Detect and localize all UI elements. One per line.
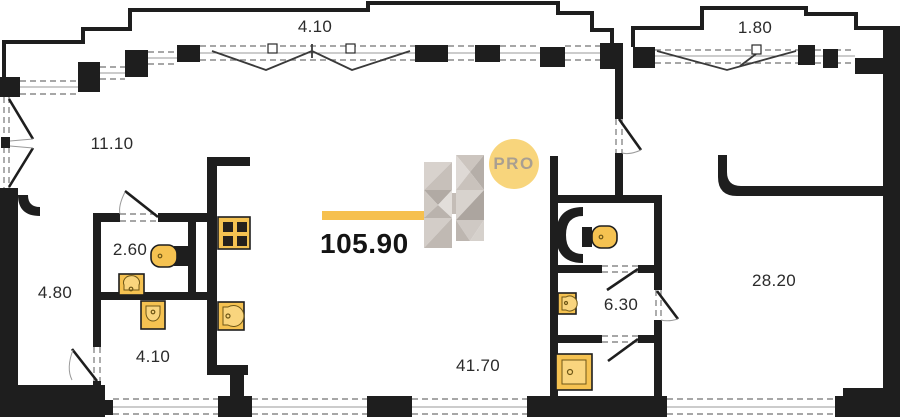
master-sink-icon — [558, 293, 577, 314]
laundry-sink-icon — [141, 301, 165, 329]
wc-door[interactable] — [602, 266, 638, 290]
pro-badge: PRO — [489, 139, 539, 189]
master-toilet-icon — [592, 226, 617, 248]
bathroom-sink-icon — [119, 274, 144, 295]
room-label-bedroom: 28.20 — [752, 271, 796, 291]
room-label-bathroom-master: 6.30 — [604, 295, 638, 315]
shower-icon — [556, 354, 592, 390]
folding-door-right[interactable] — [657, 45, 796, 70]
logo-accent-bar — [322, 211, 425, 220]
room-label-entry: 11.10 — [91, 134, 134, 154]
pro-badge-label: PRO — [493, 154, 534, 174]
laundry-door[interactable] — [69, 347, 100, 381]
master-bath-door[interactable] — [656, 290, 678, 321]
room-label-living-kitchen: 41.70 — [456, 356, 500, 376]
folding-door-left[interactable] — [212, 44, 410, 70]
entry-door[interactable] — [1, 97, 33, 188]
dimension-balcony-right: 1.80 — [738, 18, 772, 38]
corridor-door[interactable] — [616, 119, 641, 154]
room-label-bathroom-small: 2.60 — [113, 240, 147, 260]
room-label-laundry: 4.10 — [136, 347, 170, 367]
total-area-label: 105.90 — [320, 228, 409, 260]
floor-plan: 4.10 1.80 11.10 4.80 2.60 4.10 41.70 6.3… — [0, 0, 900, 417]
logo-h-icon — [424, 155, 484, 248]
dimension-balcony-top: 4.10 — [298, 17, 332, 37]
kitchen-sink-icon — [218, 302, 244, 330]
room-label-hallway: 4.80 — [38, 283, 72, 303]
stove-icon — [218, 217, 250, 249]
toilet-icon — [151, 245, 177, 267]
bathroom-small-door[interactable] — [120, 191, 158, 221]
